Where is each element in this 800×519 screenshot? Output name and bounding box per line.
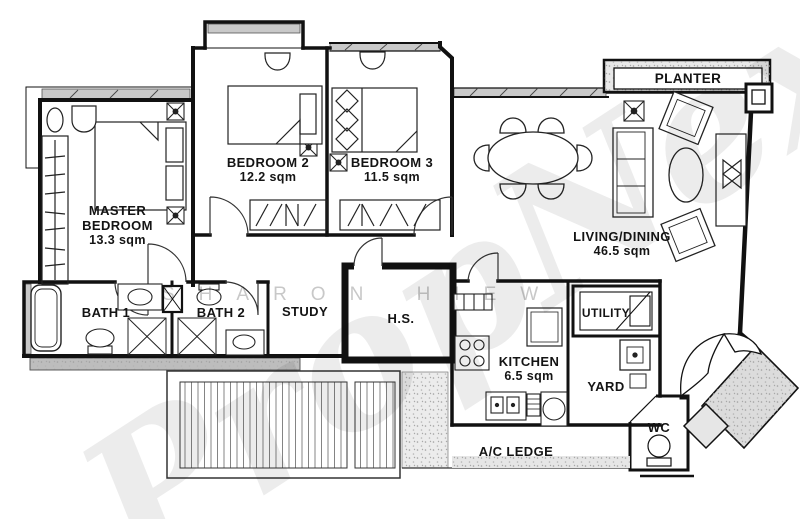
room-label-utility: UTILITY: [556, 306, 656, 321]
master-bedroom-name-line1: MASTER: [60, 203, 175, 218]
master-bedroom-area: 13.3 sqm: [60, 233, 175, 248]
bedroom3-bedside-table-icon: [360, 52, 385, 69]
yard-name: YARD: [556, 379, 656, 394]
master-wardrobe-icon: [42, 108, 68, 284]
living-dining-area: 46.5 sqm: [542, 244, 702, 259]
room-label-study: STUDY: [255, 304, 355, 319]
floor-plan: MASTER BEDROOM 13.3 sqm BEDROOM 2 12.2 s…: [0, 0, 800, 519]
study-name: STUDY: [255, 304, 355, 319]
bedroom2-bed-icon: [228, 86, 322, 144]
kitchen-sink-icon: [486, 392, 540, 420]
living-dining-name: LIVING/DINING: [542, 229, 702, 244]
room-label-wc: WC: [634, 420, 684, 435]
bath2-sink-icon: [226, 330, 264, 355]
bedroom3-bed-icon: [332, 88, 417, 152]
wc-name: WC: [634, 420, 684, 435]
hs-name: H.S.: [351, 311, 451, 326]
kitchen-counter-icon: [454, 294, 492, 310]
utility-name: UTILITY: [556, 306, 656, 321]
master-bedroom-name-line2: BEDROOM: [60, 218, 175, 233]
bedroom3-name: BEDROOM 3: [322, 155, 462, 170]
master-bedside-table-icon: [72, 106, 96, 132]
bedroom3-area: 11.5 sqm: [322, 170, 462, 185]
bath1-name: BATH 1: [56, 305, 156, 320]
deck-trellis: [167, 371, 448, 478]
room-label-bedroom2: BEDROOM 2 12.2 sqm: [198, 155, 338, 185]
kitchen-name: KITCHEN: [479, 354, 579, 369]
bath1-toilet-icon: [86, 329, 114, 354]
dining-set-icon: [474, 118, 592, 199]
tv-console-icon: [716, 134, 746, 226]
bath2-toilet-icon: [197, 284, 221, 305]
room-label-bedroom3: BEDROOM 3 11.5 sqm: [322, 155, 462, 185]
bedroom2-area: 12.2 sqm: [198, 170, 338, 185]
room-label-living-dining: LIVING/DINING 46.5 sqm: [542, 229, 702, 259]
coffee-table-icon: [669, 148, 703, 202]
bedroom2-name: BEDROOM 2: [198, 155, 338, 170]
kitchen-hob-icon: [541, 392, 567, 426]
master-bed-icon: [95, 122, 186, 210]
planter-name: PLANTER: [628, 71, 748, 86]
wc-room: [630, 396, 694, 476]
bedroom3-wardrobe-icon: [340, 200, 440, 230]
room-label-hs: H.S.: [351, 311, 451, 326]
room-label-ac-ledge: A/C LEDGE: [446, 444, 586, 459]
room-label-bath1: BATH 1: [56, 305, 156, 320]
bath2-shower-icon: [178, 318, 216, 355]
bedroom2-bedside-table-icon: [265, 53, 290, 70]
bath1-shower-icon: [128, 318, 166, 355]
sofa-icon: [613, 128, 653, 217]
room-label-planter: PLANTER: [628, 71, 748, 86]
room-label-master-bedroom: MASTER BEDROOM 13.3 sqm: [60, 203, 175, 248]
room-label-yard: YARD: [556, 379, 656, 394]
ac-ledge-name: A/C LEDGE: [446, 444, 586, 459]
bedroom2-wardrobe-icon: [250, 200, 327, 230]
